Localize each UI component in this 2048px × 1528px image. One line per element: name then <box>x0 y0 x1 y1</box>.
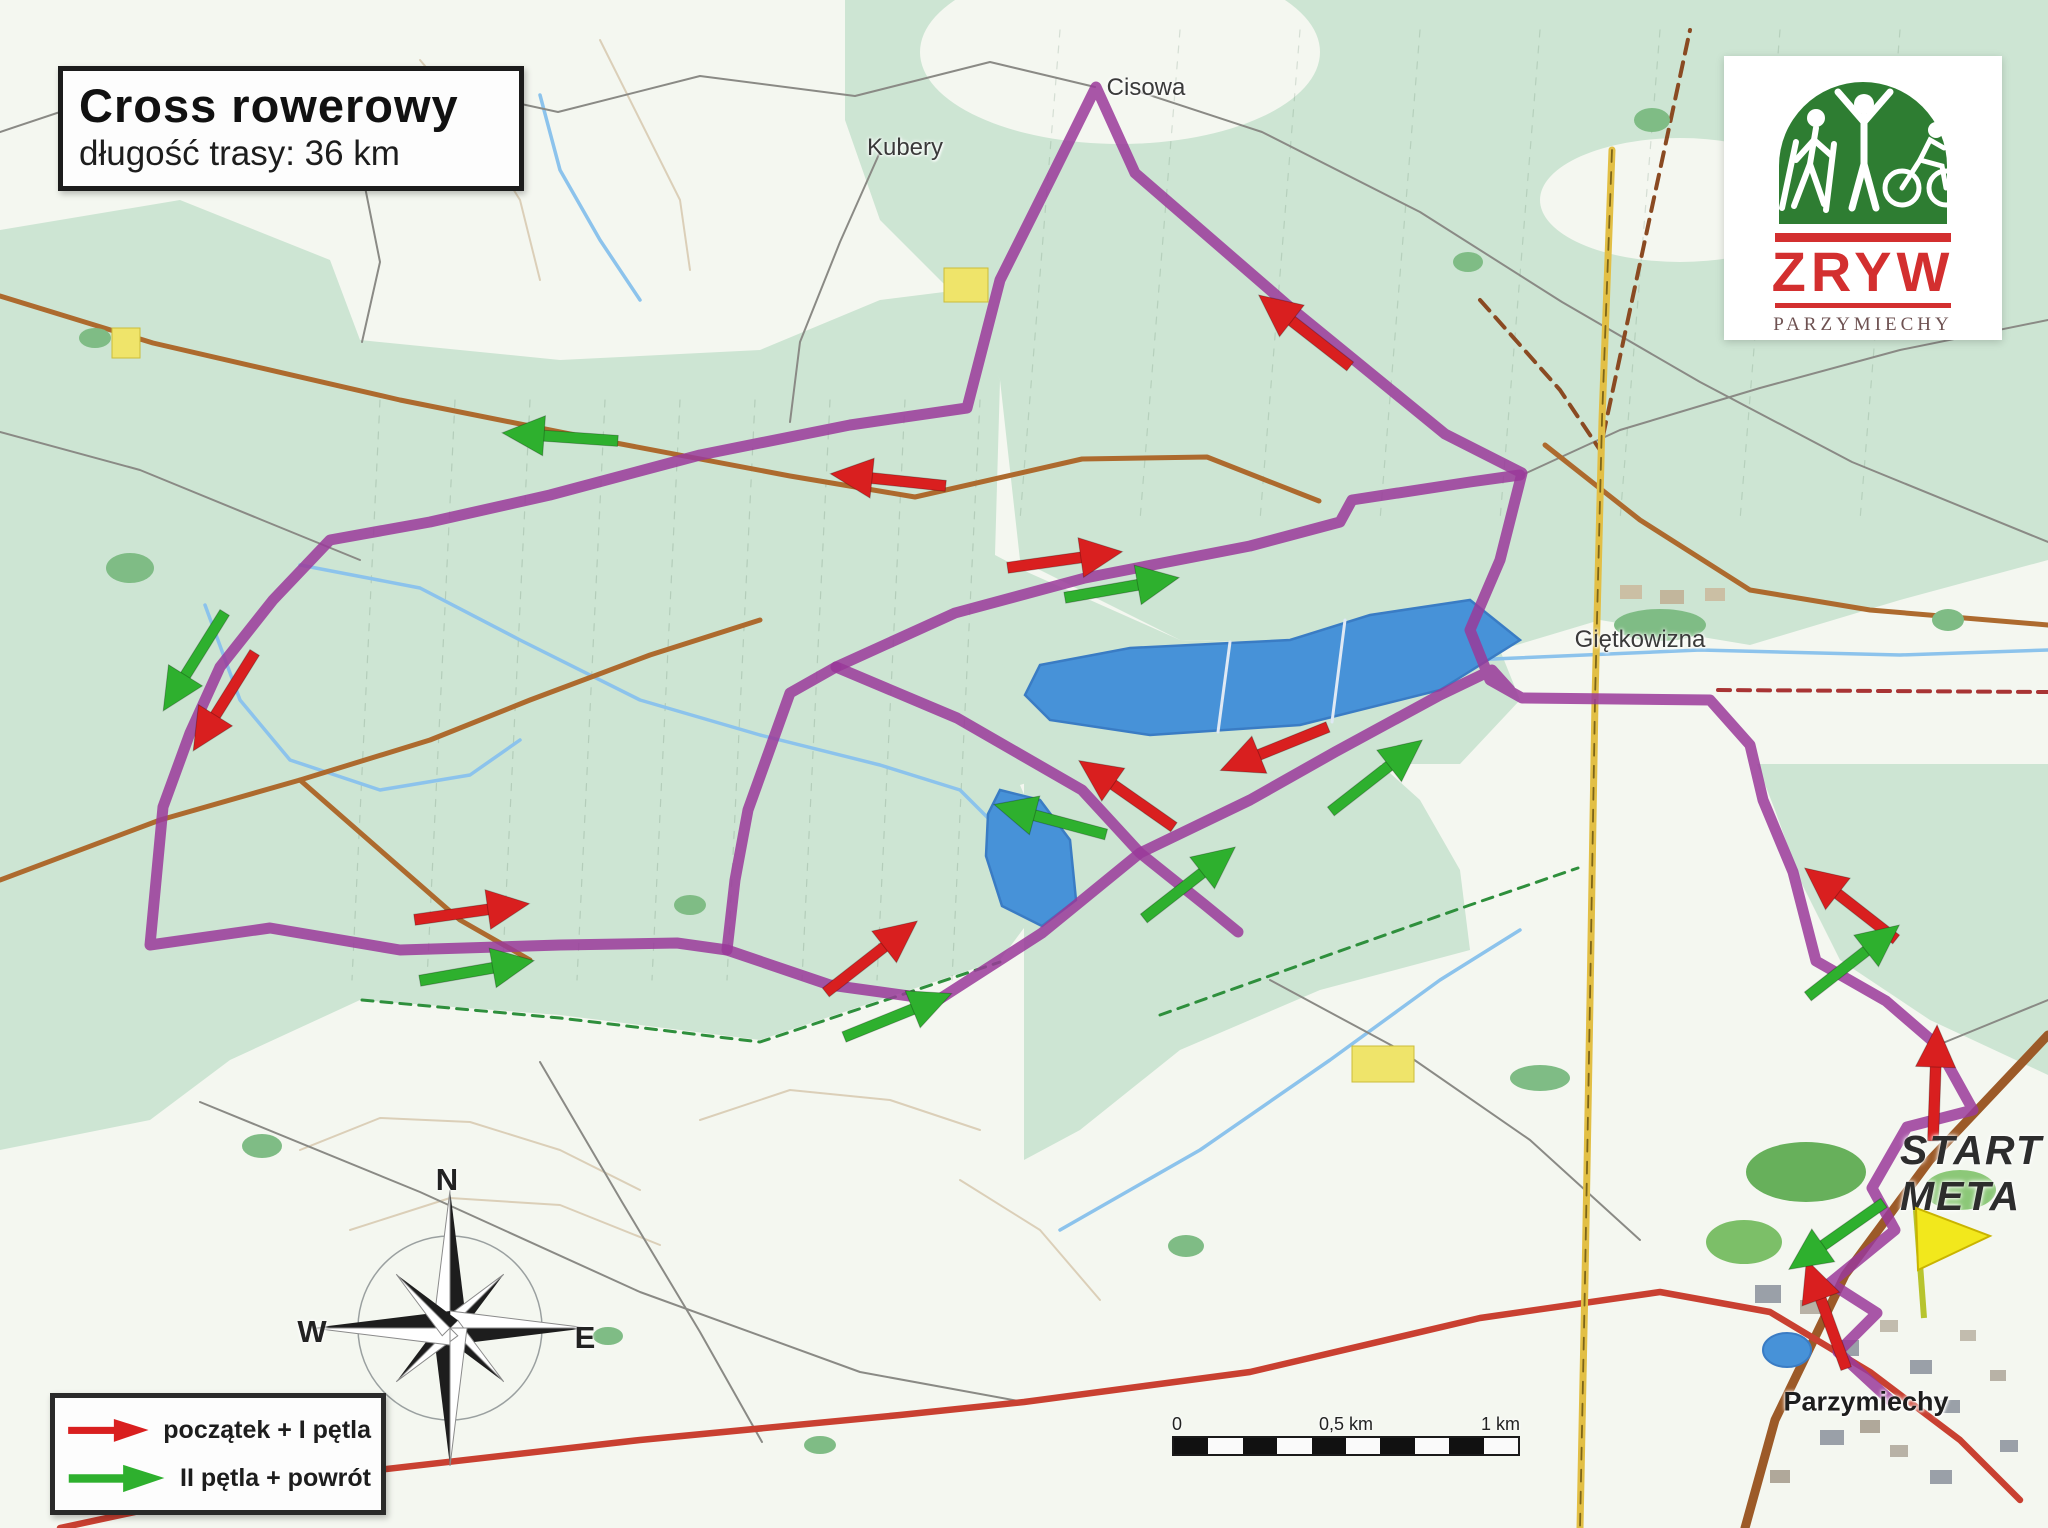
start-flag-icon <box>1902 1200 2012 1325</box>
place-label-kubery: Kubery <box>867 134 943 162</box>
legend-label-loop1: początek + I pętla <box>163 1416 371 1445</box>
scale-bar-blocks <box>1172 1436 1520 1456</box>
logo-name: ZRYW <box>1724 244 2002 300</box>
scale-one-km: 1 km <box>1481 1414 1520 1435</box>
club-logo: ZRYW PARZYMIECHY <box>1724 56 2002 340</box>
title-box: Cross rowerowy długość trasy: 36 km <box>58 66 524 191</box>
compass-e: E <box>575 1320 596 1356</box>
legend-box: początek + I pętla II pętla + powrót <box>50 1393 386 1515</box>
red-arrow-icon <box>65 1413 153 1447</box>
map-title: Cross rowerowy <box>79 81 503 130</box>
map-subtitle: długość trasy: 36 km <box>79 134 503 174</box>
scale-zero: 0 <box>1172 1414 1182 1435</box>
scale-mid: 0,5 km <box>1319 1414 1373 1435</box>
start-label: START <box>1900 1128 2043 1174</box>
logo-figures-icon <box>1724 56 2002 228</box>
place-label-cisowa: Cisowa <box>1107 74 1186 102</box>
place-label-parzymiechy: Parzymiechy <box>1783 1387 1948 1418</box>
compass-w: W <box>297 1314 326 1350</box>
scale-bar: 0 0,5 km 1 km <box>1172 1414 1520 1456</box>
map-page: Cross rowerowy długość trasy: 36 km pocz… <box>0 0 2048 1528</box>
legend-label-loop2: II pętla + powrót <box>180 1464 371 1493</box>
green-arrow-icon <box>65 1461 170 1495</box>
legend-row-loop1: początek + I pętla <box>65 1406 371 1454</box>
logo-bar-bottom <box>1775 303 1951 308</box>
legend-row-loop2: II pętla + powrót <box>65 1454 371 1502</box>
compass-n: N <box>436 1162 458 1198</box>
place-label-giętkowizna: Giętkowizna <box>1575 626 1706 654</box>
logo-subname: PARZYMIECHY <box>1724 314 2002 336</box>
